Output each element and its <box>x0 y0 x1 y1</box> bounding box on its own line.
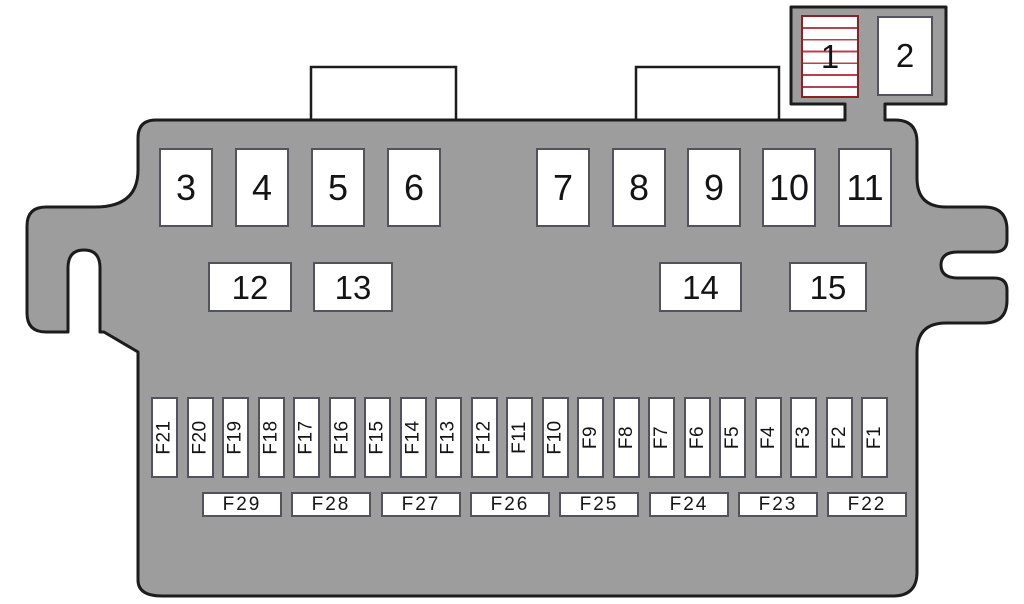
fuse-slot-F19-label: F19 <box>226 420 245 454</box>
connector-bump-right <box>636 67 779 119</box>
fuse-group-F22-label: F22 <box>848 495 887 514</box>
fuse-slot-F12-label: F12 <box>475 420 494 454</box>
fuse-group-F24: F24 <box>649 492 729 517</box>
relay-slot-10-label: 10 <box>769 170 809 206</box>
relay-slot-10: 10 <box>762 148 816 227</box>
fuse-group-F25-label: F25 <box>580 495 619 514</box>
fuse-slot-F8: F8 <box>613 397 640 478</box>
relay-slot-9: 9 <box>687 148 741 227</box>
fuse-slot-F8-label: F8 <box>617 426 636 449</box>
relay-slot-9-label: 9 <box>704 170 724 206</box>
relay-slot-3: 3 <box>159 148 213 227</box>
fuse-slot-F15: F15 <box>364 397 391 478</box>
fuse-slot-F13: F13 <box>435 397 462 478</box>
fuse-slot-F17-label: F17 <box>297 420 316 454</box>
relay-slot-11: 11 <box>838 148 892 227</box>
relay-slot-12-label: 12 <box>232 271 269 304</box>
fuse-group-F22: F22 <box>827 492 907 517</box>
relay-slot-13-label: 13 <box>335 271 372 304</box>
fuse-group-F28-label: F28 <box>312 495 351 514</box>
relay-slot-12: 12 <box>208 262 292 312</box>
fuse-slot-F18-label: F18 <box>262 420 281 454</box>
relay-slot-8-label: 8 <box>629 170 649 206</box>
fuse-group-F27: F27 <box>381 492 461 517</box>
fuse-slot-F10-label: F10 <box>546 420 565 454</box>
fuse-group-F24-label: F24 <box>670 495 709 514</box>
fuse-slot-F1-label: F1 <box>865 426 884 449</box>
fuse-group-F23: F23 <box>738 492 818 517</box>
fuse-slot-F3-label: F3 <box>794 426 813 449</box>
fuse-slot-F9-label: F9 <box>581 426 600 449</box>
connector-bump-left <box>311 67 456 119</box>
fuse-slot-F5: F5 <box>719 397 746 478</box>
fuse-group-F28: F28 <box>291 492 371 517</box>
fuse-slot-F11: F11 <box>506 397 533 478</box>
fuse-group-F26-label: F26 <box>491 495 530 514</box>
relay-slot-13: 13 <box>313 262 393 312</box>
relay-slot-1: 1 <box>801 15 859 98</box>
fuse-slot-F9: F9 <box>577 397 604 478</box>
relay-slot-14: 14 <box>659 262 742 312</box>
fuse-slot-F4-label: F4 <box>759 426 778 449</box>
fuse-slot-F6: F6 <box>684 397 711 478</box>
fuse-group-F26: F26 <box>470 492 550 517</box>
fuse-slot-F4: F4 <box>755 397 782 478</box>
fuse-slot-F11-label: F11 <box>510 421 529 454</box>
relay-slot-7: 7 <box>536 148 590 227</box>
relay-slot-14-label: 14 <box>682 271 719 304</box>
fuse-slot-F7-label: F7 <box>652 426 671 449</box>
fuse-slot-F14: F14 <box>400 397 427 478</box>
fuse-slot-F18: F18 <box>258 397 285 478</box>
fuse-slot-F3: F3 <box>790 397 817 478</box>
fuse-group-F29: F29 <box>202 492 282 517</box>
relay-slot-11-label: 11 <box>846 170 883 206</box>
relay-slot-6-label: 6 <box>404 170 424 206</box>
relay-slot-4: 4 <box>235 148 289 227</box>
fuse-slot-F2-label: F2 <box>830 426 849 449</box>
relay-slot-1-label: 1 <box>821 38 839 76</box>
fuse-box-diagram: 1 2 3456789101112131415F21F20F19F18F17F1… <box>0 0 1024 604</box>
relay-slot-7-label: 7 <box>553 170 573 206</box>
fuse-slot-F1: F1 <box>861 397 888 478</box>
fuse-slot-F16-label: F16 <box>333 420 352 454</box>
fuse-slot-F13-label: F13 <box>439 420 458 454</box>
fuse-slot-F21-label: F21 <box>155 420 174 454</box>
fuse-slot-F14-label: F14 <box>404 420 423 454</box>
relay-slot-2-label: 2 <box>896 37 914 75</box>
relay-slot-6: 6 <box>387 148 441 227</box>
relay-slot-3-label: 3 <box>176 170 196 206</box>
fuse-group-F23-label: F23 <box>759 495 798 514</box>
relay-slot-8: 8 <box>612 148 666 227</box>
fuse-slot-F15-label: F15 <box>368 420 387 454</box>
fuse-slot-F20: F20 <box>187 397 214 478</box>
fuse-slot-F5-label: F5 <box>723 426 742 449</box>
relay-slot-5-label: 5 <box>328 170 348 206</box>
fuse-slot-F21: F21 <box>151 397 178 478</box>
fuse-slot-F16: F16 <box>329 397 356 478</box>
fuse-group-F27-label: F27 <box>402 495 441 514</box>
fuse-slot-F2: F2 <box>826 397 853 478</box>
fuse-slot-F10: F10 <box>542 397 569 478</box>
fuse-slot-F17: F17 <box>293 397 320 478</box>
fuse-slot-F12: F12 <box>471 397 498 478</box>
fuse-slot-F20-label: F20 <box>191 420 210 454</box>
relay-slot-15-label: 15 <box>810 271 847 304</box>
relay-slot-5: 5 <box>311 148 365 227</box>
fuse-slot-F6-label: F6 <box>688 426 707 449</box>
fuse-group-F25: F25 <box>559 492 639 517</box>
fuse-group-F29-label: F29 <box>223 495 262 514</box>
relay-slot-2: 2 <box>877 16 933 96</box>
relay-slot-4-label: 4 <box>252 170 272 206</box>
fuse-slot-F7: F7 <box>648 397 675 478</box>
relay-slot-15: 15 <box>789 262 867 312</box>
fuse-slot-F19: F19 <box>222 397 249 478</box>
